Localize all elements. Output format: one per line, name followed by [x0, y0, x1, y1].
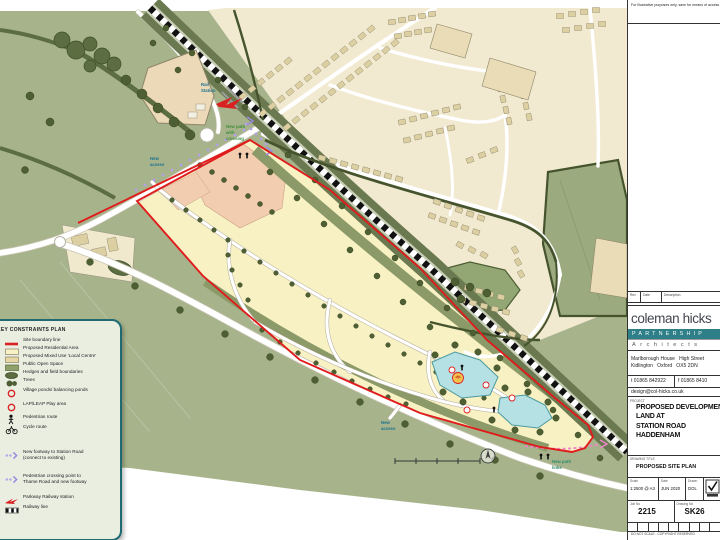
svg-text:access: access [381, 426, 396, 431]
drawing-no-value: SK26 [675, 506, 720, 516]
project-line: HADDENHAM [628, 431, 720, 441]
svg-text:links: links [552, 465, 562, 470]
drawn-value: DOL [686, 483, 703, 491]
scale-date-drawn-row: Scale 1:2500 @ A3 Date JUN 2020 Drawn DO… [628, 477, 720, 501]
site-plan-sheet: Rail Station New path with crossing New … [0, 0, 720, 540]
date-value: JUN 2020 [659, 483, 685, 491]
svg-text:access: access [150, 162, 165, 167]
job-drawing-number-row: Job No 2215 Drawing No SK26 [628, 500, 720, 523]
rail-station-label: Rail [201, 82, 209, 87]
revision-header-row: Rev Date Description [628, 291, 720, 303]
legend-item-railway-line: Railway line [0, 504, 120, 514]
play-area-icon [5, 399, 19, 410]
project-line: PROPOSED DEVELOPMENT [628, 403, 720, 413]
svg-text:Station: Station [201, 88, 216, 93]
revision-cells-row [628, 522, 720, 532]
practice-stamp [704, 477, 720, 500]
scale-value: 1:2500 @ A3 [628, 483, 658, 491]
new-path-links-label: New path [552, 459, 571, 464]
cycle-route-icon [5, 422, 19, 433]
svg-text:with: with [225, 130, 235, 135]
legend-item-new-footway: New footway to Station Road (connect to … [0, 449, 120, 459]
station-forecourt-loop [200, 128, 214, 142]
project-section: PROJECT PROPOSED DEVELOPMENT LAND AT STA… [628, 397, 720, 456]
firm-name: coleman hicks [628, 306, 720, 329]
pencil-icon [707, 494, 718, 497]
drawing-title: PROPOSED SITE PLAN [628, 461, 720, 470]
title-block: For illustrative purposes only, save for… [627, 0, 720, 540]
project-line: STATION ROAD [628, 422, 720, 432]
crossing-point-icon [5, 471, 19, 482]
firm-architects-line: Architects [628, 339, 720, 350]
illustrative-note: For illustrative purposes only, save for… [628, 0, 720, 24]
svg-text:crossing: crossing [226, 136, 244, 141]
legend-item-crossing-point: Pedestrian crossing point to Thame Road … [0, 473, 120, 483]
legend-item-ponds: Village ponds/ balancing ponds [0, 387, 120, 397]
job-no-value: 2215 [628, 506, 674, 516]
drawing-title-section: DRAWING TITLE PROPOSED SITE PLAN [628, 455, 720, 478]
railway-line-icon [5, 502, 19, 513]
legend-title: KEY CONSTRAINTS PLAN [0, 327, 66, 333]
copyright-footer: DO NOT SCALE - COPYRIGHT RESERVED [628, 532, 720, 536]
project-line: LAND AT [628, 412, 720, 422]
new-path-crossing-label: New path [226, 124, 245, 129]
date-header: Date [641, 292, 662, 302]
firm-logo-block: coleman hicks PARTNERSHIP Architects [628, 305, 720, 351]
north-compass [481, 449, 495, 463]
legend-item-cycle-route: Cycle route [0, 424, 120, 434]
legend-item-play-area: LAP/LEAP Play area [0, 401, 120, 411]
firm-email: design@col-hicks.co.uk [628, 386, 720, 397]
junction-roundabout [55, 237, 66, 248]
rev-header: Rev [628, 292, 641, 302]
legend-key-constraints: KEY CONSTRAINTS PLAN Site boundary line … [0, 319, 122, 540]
firm-partnership-band: PARTNERSHIP [628, 329, 720, 339]
new-footway-icon [5, 447, 19, 458]
pond-icon [5, 385, 19, 396]
new-access-north-label: New [150, 156, 159, 161]
description-header: Description [662, 292, 720, 302]
new-access-south-label: New [381, 420, 390, 425]
firm-address: Marlborough House High StreetKidlington … [628, 352, 720, 370]
